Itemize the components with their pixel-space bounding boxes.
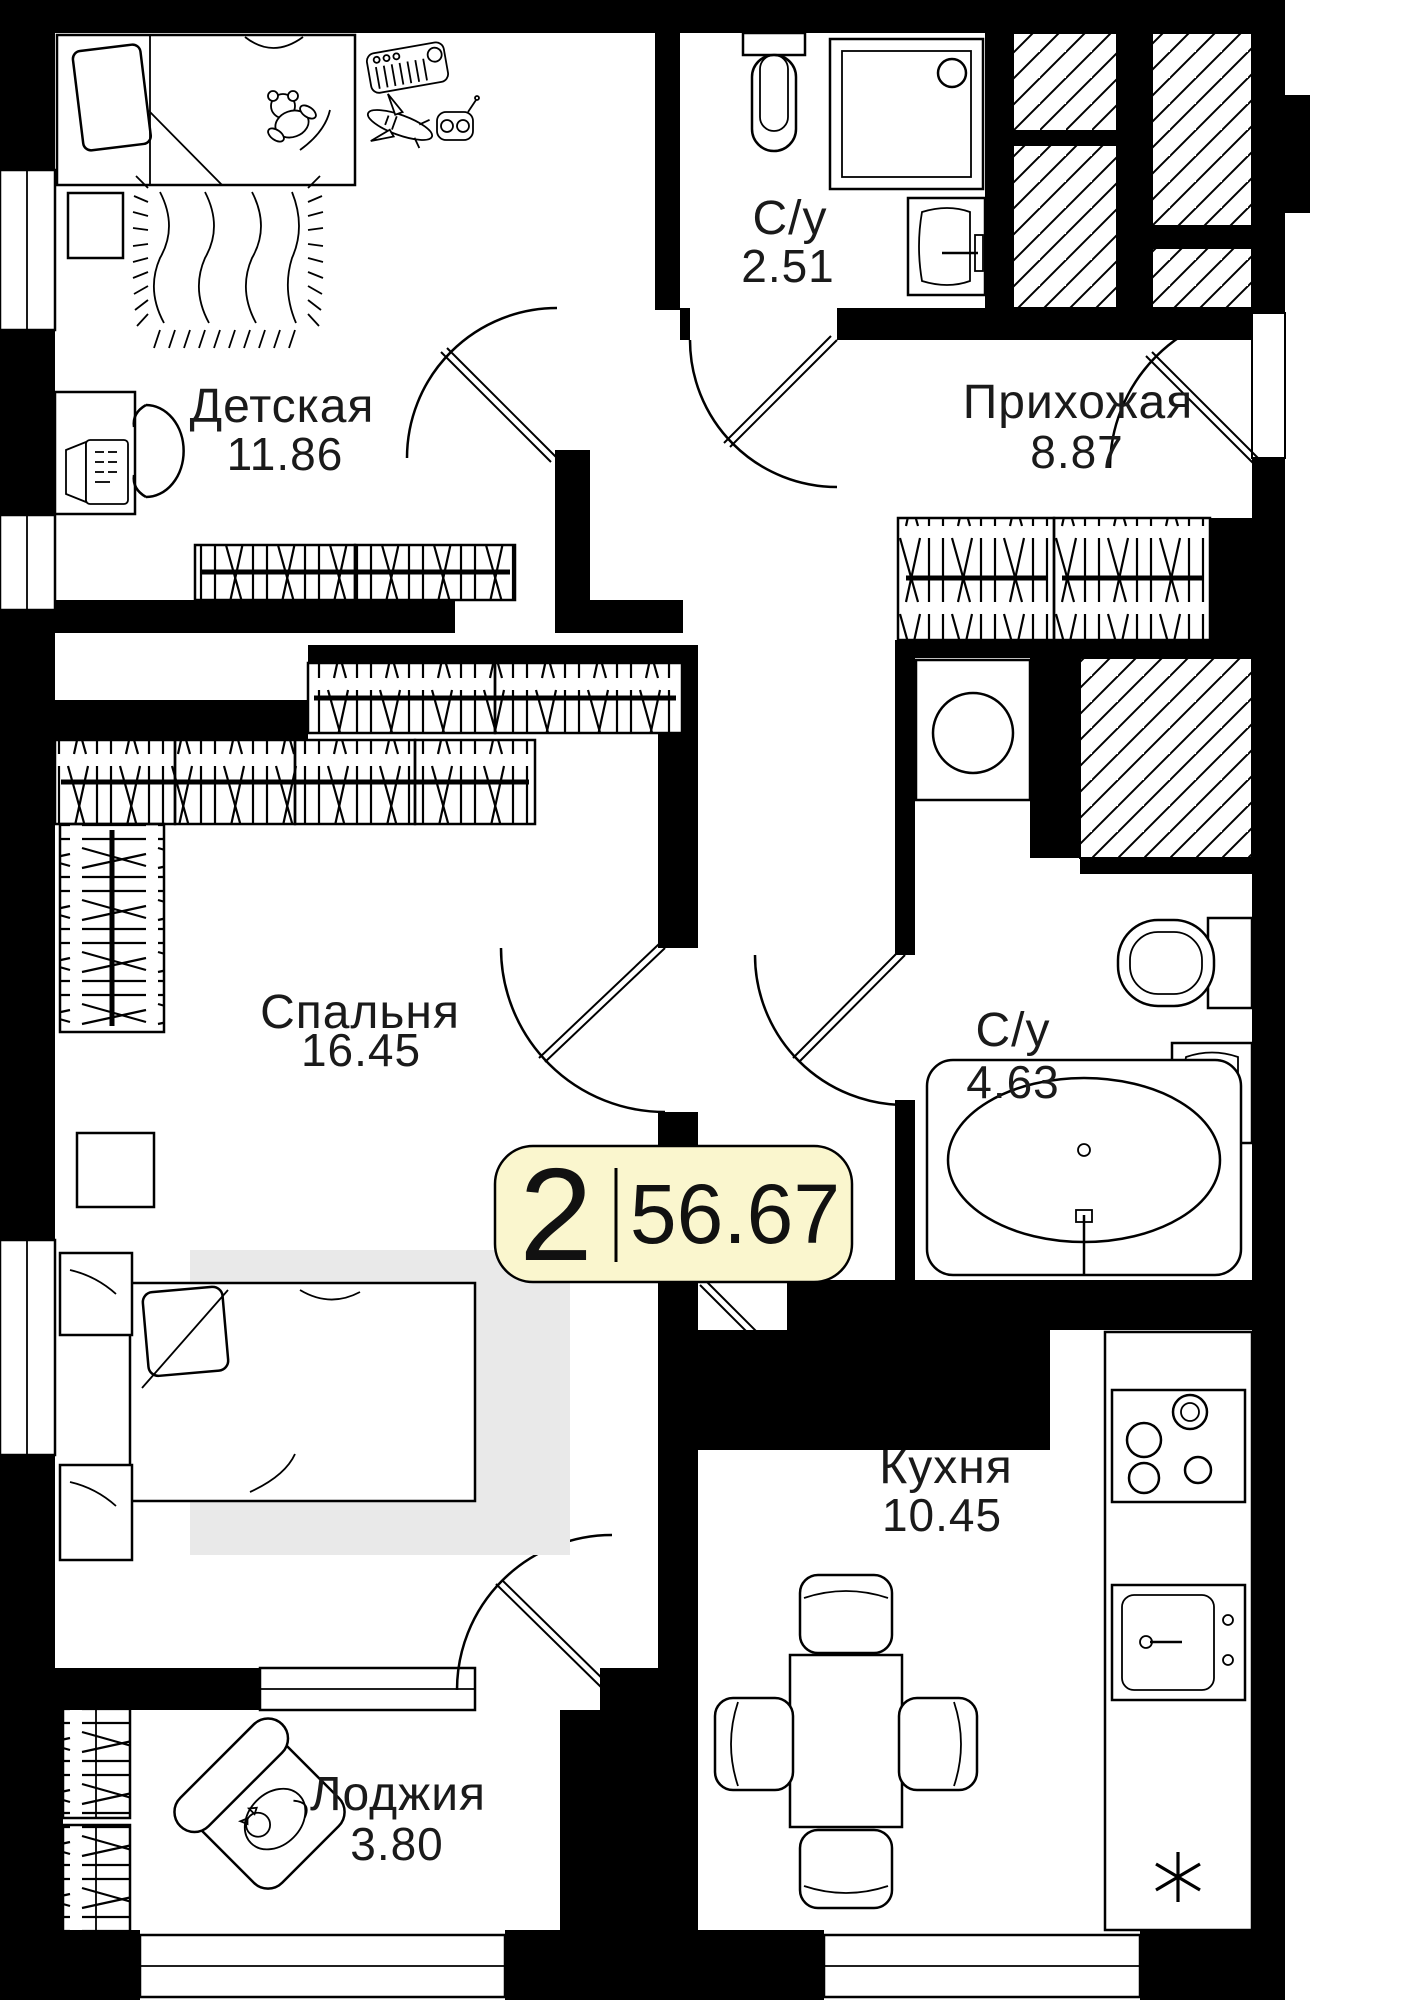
room-area-su1: 2.51 <box>741 240 835 292</box>
kitchen-table <box>715 1575 977 1908</box>
shower-icon <box>830 39 983 189</box>
window-bedroom-loggia <box>260 1668 475 1710</box>
child-pillow <box>72 44 152 152</box>
shaft-hatch <box>1013 33 1117 131</box>
room-label-su1: С/у <box>753 192 828 245</box>
door-bedroom <box>501 944 665 1112</box>
room-label-kuhnya: Кухня <box>879 1441 1012 1494</box>
room-area-lodzhiya: 3.80 <box>350 1818 444 1870</box>
room-label-detskaya: Детская <box>190 380 375 433</box>
child-rug <box>133 176 323 348</box>
wall-top <box>0 0 1285 33</box>
room-area-kuhnya: 10.45 <box>882 1489 1002 1541</box>
room-area-spalnya: 16.45 <box>301 1024 421 1076</box>
door-loggia <box>457 1535 612 1692</box>
toy-plane-icon <box>359 90 440 160</box>
child-desk <box>55 392 184 514</box>
badge-rooms-count: 2 <box>519 1141 592 1288</box>
wall-loggia-kitchen <box>560 1710 658 1930</box>
toy-controller-icon <box>437 96 479 140</box>
chair-left <box>715 1698 793 1790</box>
chair-top <box>800 1575 892 1653</box>
badge-total-area: 56.67 <box>630 1167 840 1261</box>
door-su2 <box>755 951 905 1105</box>
washing-machine-icon <box>916 660 1030 800</box>
floor-plan-page: Детская 11.86 С/у 2.51 Прихожая 8.87 Спа… <box>0 0 1416 2000</box>
shaft-hatch-su2 <box>1080 658 1252 858</box>
child-closets <box>195 545 515 600</box>
room-label-lodzhiya: Лоджия <box>310 1768 486 1821</box>
wall-childroom-bottom <box>55 600 455 633</box>
wall-su2-bottom <box>895 1280 1255 1330</box>
bedroom-side-table <box>77 1133 154 1207</box>
apartment-badge: 2 56.67 <box>495 1141 852 1288</box>
toilet2-icon <box>1118 918 1252 1008</box>
bed-pillow <box>142 1286 229 1377</box>
toilet-icon <box>743 33 805 151</box>
wall-protrusion <box>1285 95 1310 213</box>
door-childroom <box>407 308 557 462</box>
window-loggia-side-glazing <box>63 1703 130 1935</box>
chair-right <box>899 1698 977 1790</box>
door-su1 <box>690 336 837 487</box>
laptop-icon <box>66 440 128 504</box>
window-loggia-bottom <box>140 1935 505 1997</box>
desk-chair <box>134 405 184 497</box>
wall-loggia-left <box>0 1668 63 2000</box>
shaft-hatch <box>1152 248 1252 308</box>
double-bed <box>130 1283 475 1501</box>
wall-childroom-right <box>655 33 680 310</box>
hob-icon <box>1112 1390 1245 1502</box>
room-area-prihozhaya: 8.87 <box>1030 426 1124 478</box>
wall-bedroom-right <box>658 733 698 948</box>
toy-piano-icon <box>366 41 450 94</box>
shaft-hatch <box>1013 145 1117 308</box>
window-bedroom <box>0 1240 55 1455</box>
wall-left <box>0 33 55 170</box>
room-area-detskaya: 11.86 <box>227 428 344 480</box>
nightstand-2 <box>60 1465 132 1560</box>
wall-right <box>1252 33 1285 313</box>
shaft-hatch <box>1152 33 1252 226</box>
window-kitchen-bottom <box>824 1935 1140 1997</box>
window-childroom-1 <box>0 170 55 330</box>
floor-plan: Детская 11.86 С/у 2.51 Прихожая 8.87 Спа… <box>0 0 1416 2000</box>
chair-bottom <box>800 1830 892 1908</box>
nightstand-1 <box>60 1253 132 1335</box>
entrance-threshold <box>1252 313 1285 458</box>
childroom-furniture <box>55 35 515 600</box>
shaft-hatch-kitchen-2 <box>915 1340 1040 1440</box>
window-childroom-2 <box>0 515 55 610</box>
bedroom-furniture <box>55 663 682 1560</box>
room-label-su2: С/у <box>976 1004 1051 1057</box>
child-shelf <box>68 193 123 258</box>
sink-icon <box>908 198 985 295</box>
room-area-su2: 4.63 <box>966 1056 1060 1108</box>
kitchen-sink-icon <box>1112 1585 1245 1700</box>
room-label-prihozhaya: Прихожая <box>963 376 1193 429</box>
wall-kitchen-left <box>658 1290 698 1930</box>
hall-wardrobe <box>898 518 1210 640</box>
